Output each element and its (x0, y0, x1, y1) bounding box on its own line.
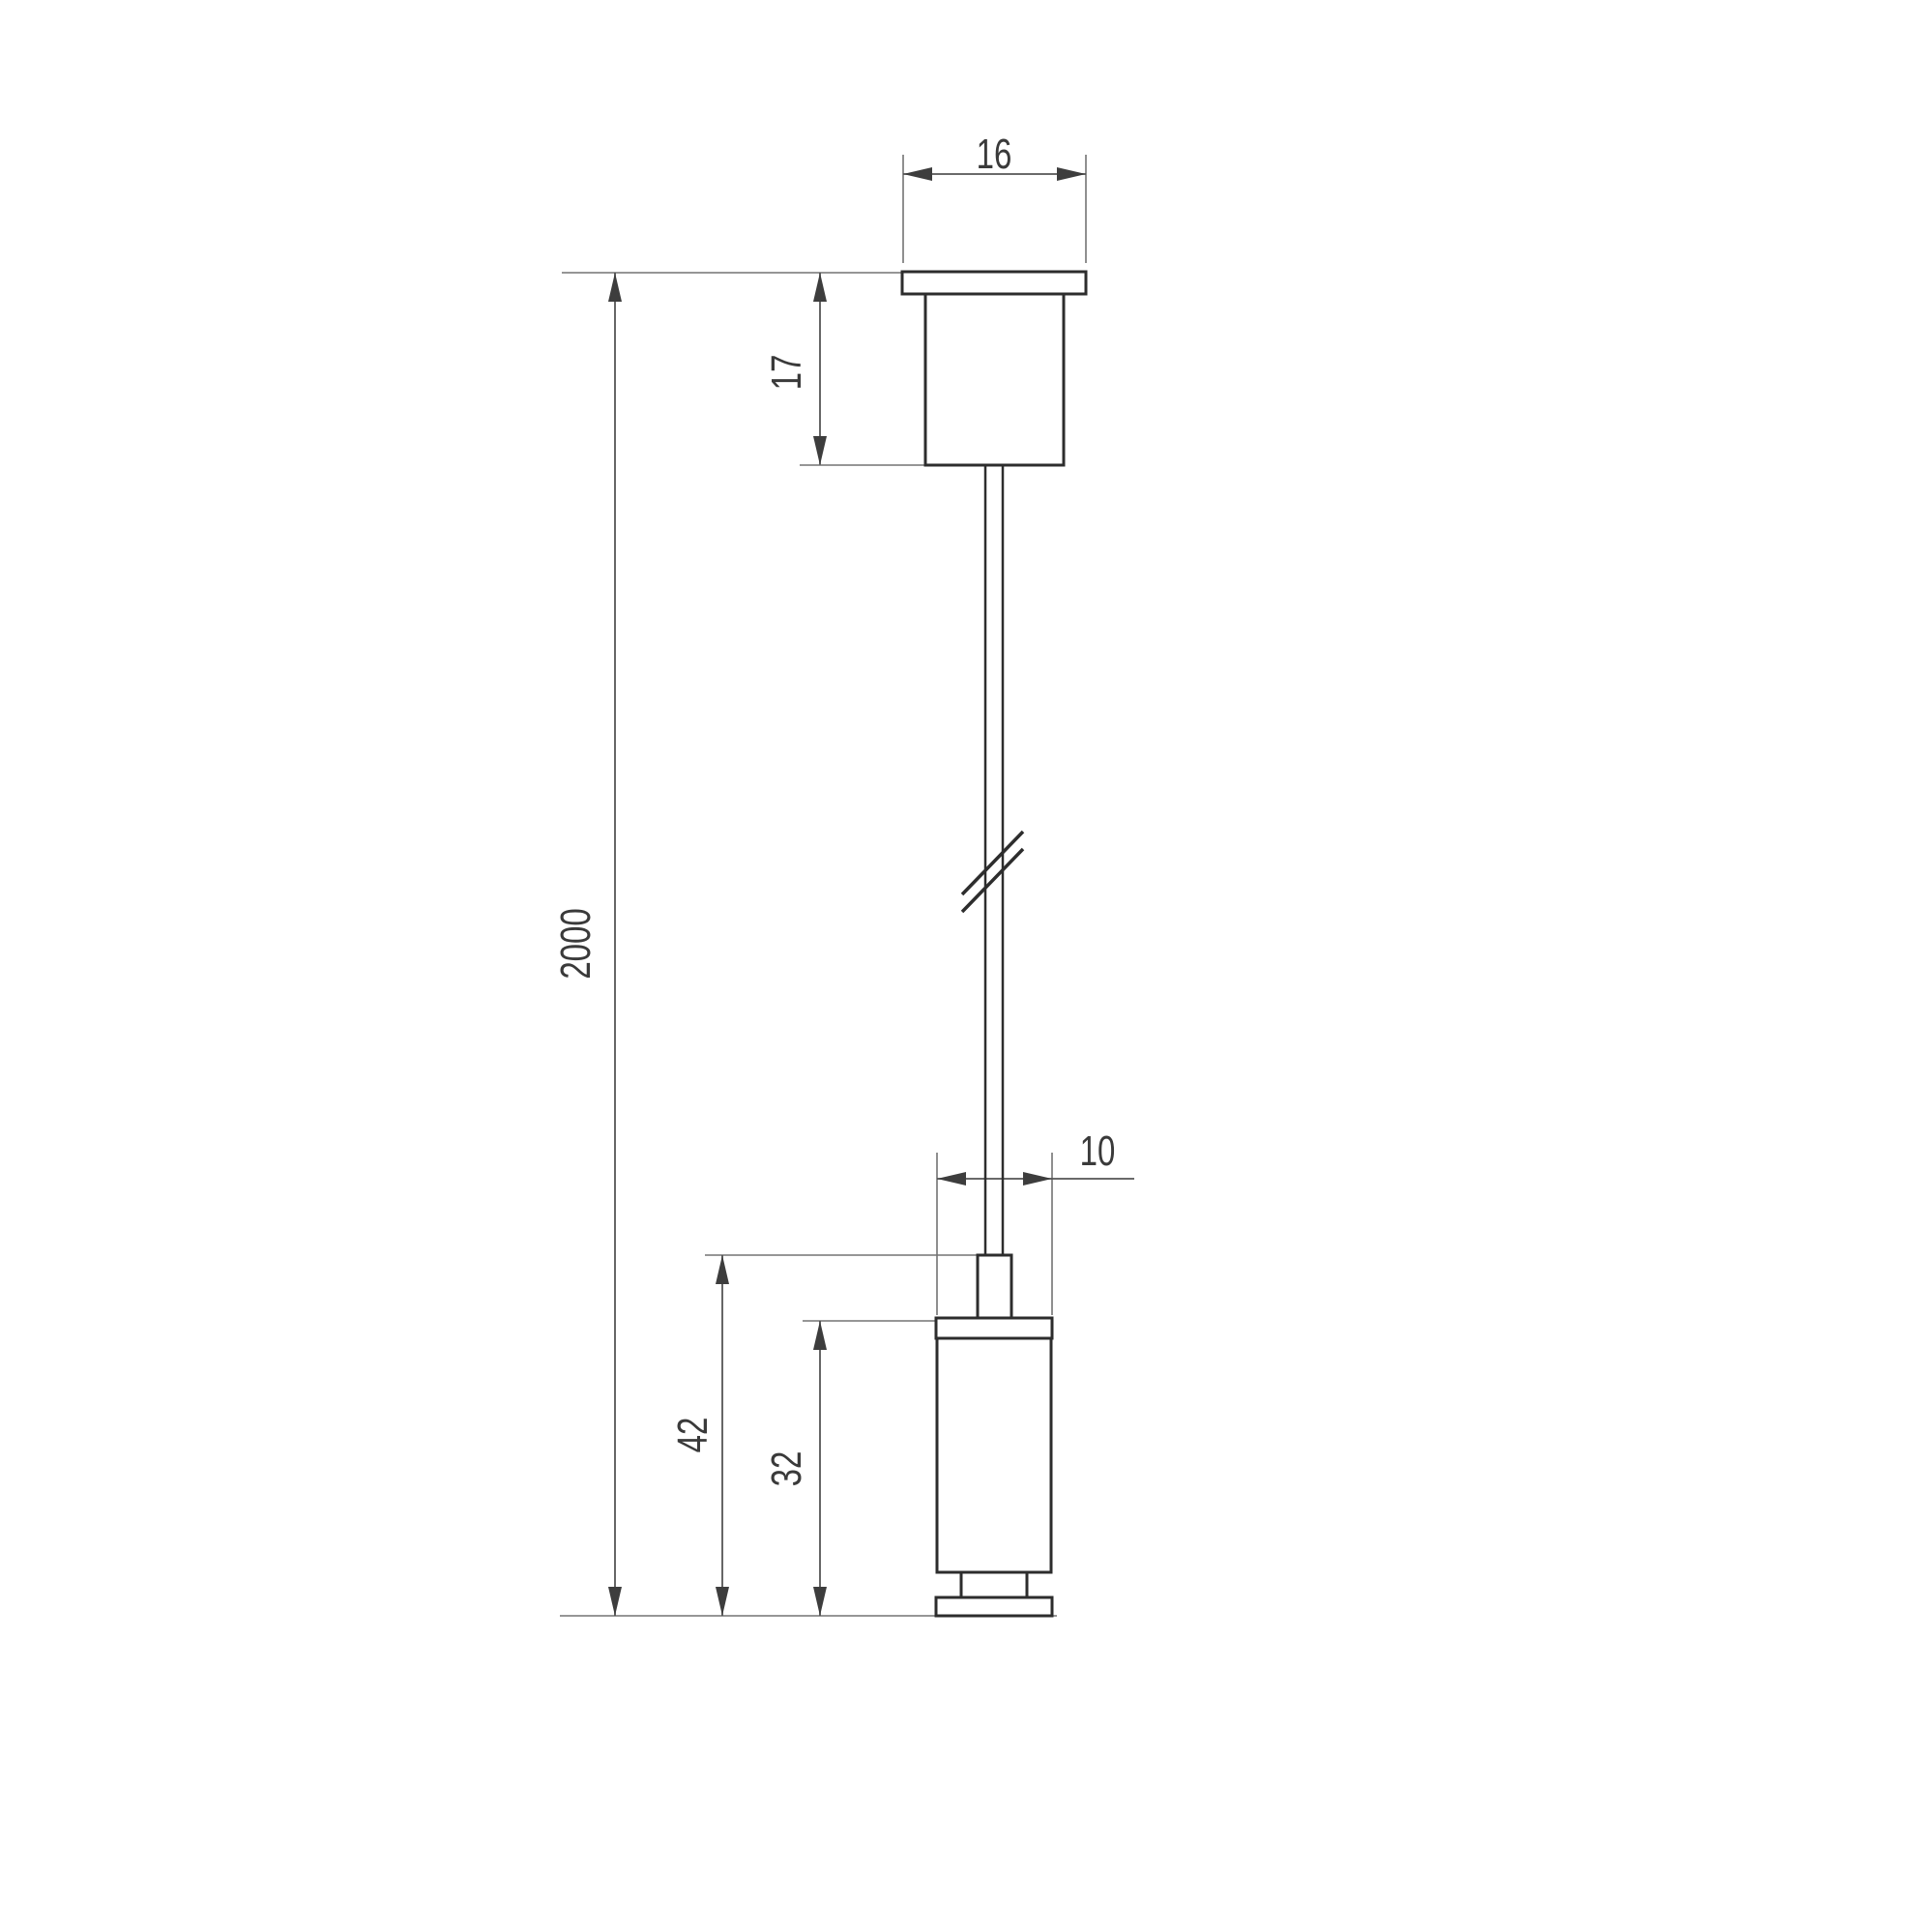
dimension-42-lower-total-height: 42 (670, 1255, 977, 1616)
dimension-drawing-svg: 16 17 2000 10 (0, 0, 1932, 1932)
arrowhead-left-icon (937, 1172, 966, 1186)
arrowhead-up-icon (813, 1321, 827, 1350)
fixture-top-flange (936, 1318, 1052, 1338)
dim-label-gripper-width: 10 (1080, 1128, 1116, 1176)
arrowhead-up-icon (608, 273, 622, 302)
canopy-mounting-plate (902, 272, 1086, 294)
canopy-body-cylinder (925, 294, 1064, 465)
ceiling-canopy (902, 272, 1086, 465)
dim-label-canopy-width: 16 (977, 132, 1012, 179)
arrowhead-up-icon (813, 273, 827, 302)
break-mark-lower (962, 849, 1023, 912)
dimension-10-gripper-width: 10 (937, 1128, 1134, 1315)
dimension-32-lower-body-height: 32 (764, 1321, 936, 1616)
dim-label-canopy-height: 17 (764, 355, 811, 391)
arrowhead-up-icon (716, 1255, 729, 1284)
dimension-2000-cable-length: 2000 (553, 273, 622, 1616)
dim-label-cable-length: 2000 (553, 908, 600, 979)
arrowhead-right-icon (1023, 1172, 1052, 1186)
dimension-17-canopy-height: 17 (764, 273, 925, 465)
break-mark-upper (962, 832, 1023, 894)
suspension-cable (962, 465, 1023, 1255)
arrowhead-down-icon (716, 1587, 729, 1616)
arrowhead-right-icon (1057, 167, 1086, 181)
drawing-canvas: 16 17 2000 10 (0, 0, 1932, 1932)
cable-gripper-nipple (978, 1255, 1011, 1321)
fixture-body-cylinder (937, 1338, 1051, 1572)
arrowhead-down-icon (813, 436, 827, 465)
fixture-bottom-flange (936, 1597, 1052, 1616)
fixture-neck-recess (961, 1572, 1027, 1597)
lower-fixture (936, 1255, 1052, 1616)
dim-label-lower-body-height: 32 (764, 1451, 811, 1487)
arrowhead-down-icon (813, 1587, 827, 1616)
arrowhead-left-icon (903, 167, 932, 181)
dimension-16-canopy-width: 16 (903, 132, 1086, 263)
dim-label-lower-total-height: 42 (670, 1418, 717, 1453)
cable-break-symbol-icon (962, 832, 1023, 912)
arrowhead-down-icon (608, 1587, 622, 1616)
